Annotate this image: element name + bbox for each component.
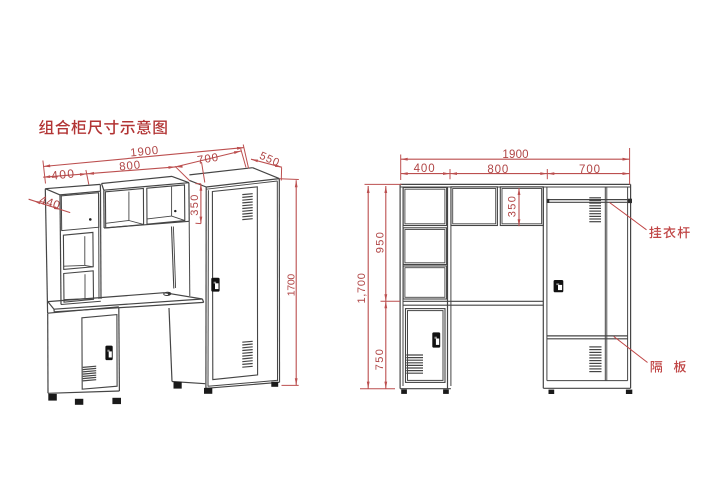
svg-text:400: 400 — [414, 163, 436, 175]
svg-text:1900: 1900 — [502, 149, 528, 161]
svg-text:950: 950 — [375, 231, 387, 254]
svg-text:1700: 1700 — [286, 274, 298, 297]
svg-text:1,700: 1,700 — [356, 272, 368, 303]
svg-text:400: 400 — [51, 166, 77, 182]
svg-text:750: 750 — [374, 348, 386, 371]
svg-text:700: 700 — [579, 164, 601, 176]
svg-text:350: 350 — [507, 195, 519, 218]
svg-text:350: 350 — [189, 193, 201, 216]
svg-text:800: 800 — [119, 159, 142, 173]
svg-text:800: 800 — [487, 164, 509, 176]
